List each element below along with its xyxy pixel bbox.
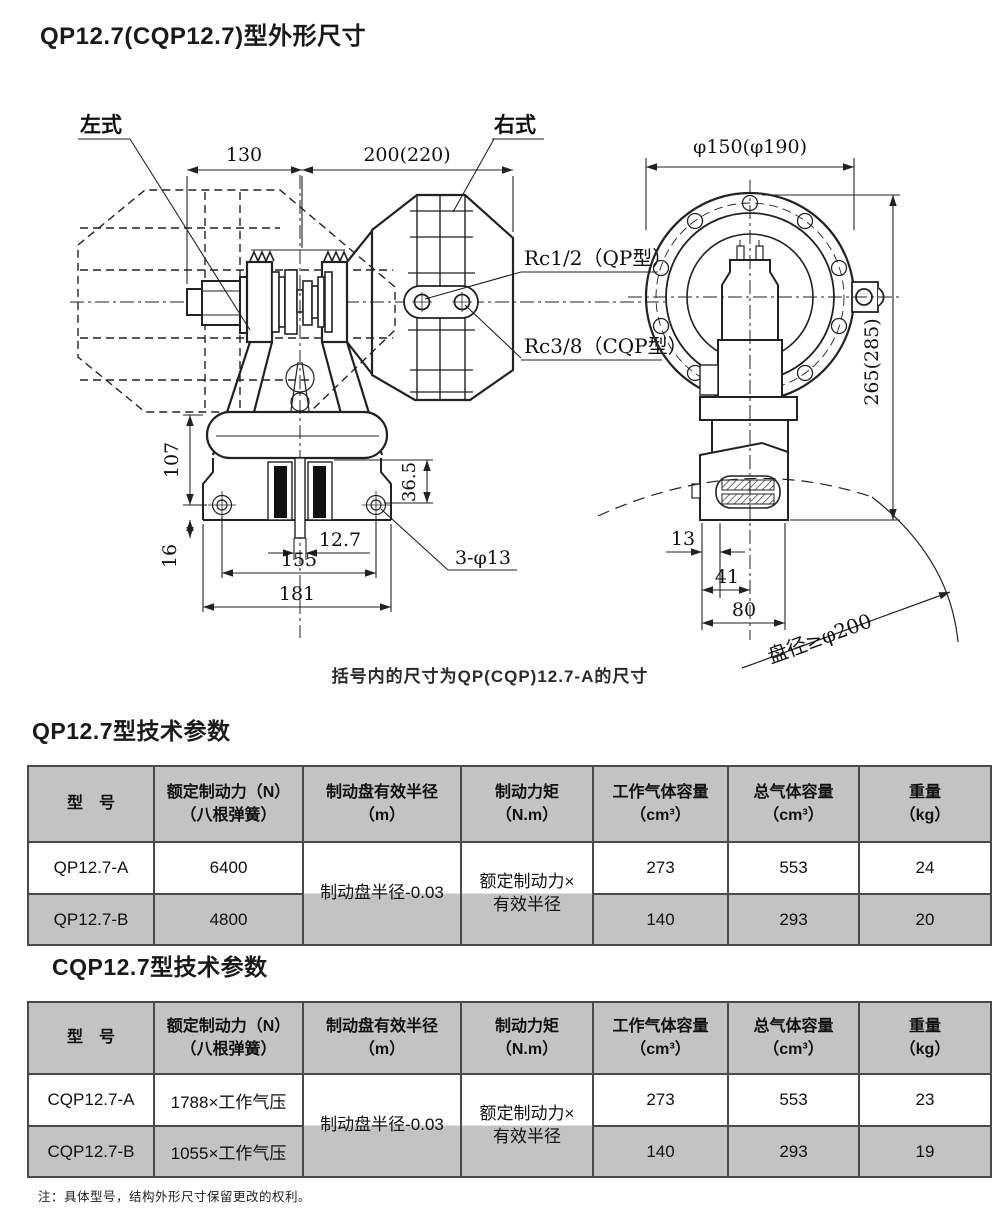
label-disc-diameter: 盘径≥φ200: [764, 609, 875, 669]
cqp-col-model: 型 号: [28, 1002, 154, 1074]
qp-b-force: 4800: [154, 894, 303, 945]
mount-hole-right: [362, 491, 390, 519]
technical-drawing: 130 200(220) 107 16 36.5: [0, 0, 1006, 700]
qp-col-torque: 制动力矩（N.m）: [461, 766, 593, 842]
dim-107: 107: [161, 442, 183, 478]
cqp-col-total-volume: 总气体容量（cm³）: [728, 1002, 859, 1074]
side-bracket: [692, 443, 788, 520]
dim-16: 16: [159, 544, 181, 568]
cqp-col-force: 额定制动力（N）（八根弹簧）: [154, 1002, 303, 1074]
dim-200-220: 200(220): [363, 144, 450, 166]
pad-disc-stack: [272, 270, 332, 334]
dim-265-285: 265(285): [861, 318, 883, 405]
side-view: φ150(φ190) 265(285) 13 41 80: [598, 136, 958, 668]
qp-table-title: QP12.7型技术参数: [32, 712, 231, 746]
cylinder-housing: [207, 412, 387, 458]
qp-b-weight: 20: [859, 894, 991, 945]
cqp-a-work-volume: 273: [593, 1074, 728, 1126]
dim-phi150: φ150(φ190): [693, 136, 807, 158]
cqp-merged-torque: 额定制动力×有效半径: [461, 1074, 593, 1177]
air-port-slot: [404, 286, 478, 318]
lower-bracket: [203, 458, 391, 538]
cqp-a-weight: 23: [859, 1074, 991, 1126]
qp-a-work-volume: 273: [593, 842, 728, 894]
dim-155: 155: [281, 549, 317, 571]
qp-b-work-volume: 140: [593, 894, 728, 945]
qp-col-work-volume: 工作气体容量（cm³）: [593, 766, 728, 842]
qp-merged-radius: 制动盘半径-0.03: [303, 842, 461, 945]
qp-parameters-table: 型 号 额定制动力（N）（八根弹簧） 制动盘有效半径（m） 制动力矩（N.m） …: [27, 765, 992, 946]
cqp-a-model: CQP12.7-A: [28, 1074, 154, 1126]
dim-13: 13: [671, 528, 695, 550]
cqp-col-radius: 制动盘有效半径（m）: [303, 1002, 461, 1074]
cqp-b-work-volume: 140: [593, 1126, 728, 1177]
cqp-header-row: 型 号 额定制动力（N）（八根弹簧） 制动盘有效半径（m） 制动力矩（N.m） …: [28, 1002, 991, 1074]
qp-col-force: 额定制动力（N）（八根弹簧）: [154, 766, 303, 842]
drawing-caption: 括号内的尺寸为QP(CQP)12.7-A的尺寸: [255, 662, 725, 687]
qp-header-row: 型 号 额定制动力（N）（八根弹簧） 制动盘有效半径（m） 制动力矩（N.m） …: [28, 766, 991, 842]
cqp-merged-radius: 制动盘半径-0.03: [303, 1074, 461, 1177]
dim-80: 80: [732, 599, 756, 621]
footnote: 注：具体型号，结构外形尺寸保留更改的权利。: [38, 1186, 311, 1205]
qp-col-total-volume: 总气体容量（cm³）: [728, 766, 859, 842]
dim-3-phi13: 3-φ13: [455, 547, 511, 569]
cqp-a-total-volume: 553: [728, 1074, 859, 1126]
dim-41: 41: [715, 566, 739, 588]
qp-a-model: QP12.7-A: [28, 842, 154, 894]
qp-col-radius: 制动盘有效半径（m）: [303, 766, 461, 842]
qp-a-weight: 24: [859, 842, 991, 894]
cqp-table-title: CQP12.7型技术参数: [52, 948, 268, 982]
qp-a-total-volume: 553: [728, 842, 859, 894]
cqp-b-model: CQP12.7-B: [28, 1126, 154, 1177]
qp-col-model: 型 号: [28, 766, 154, 842]
front-view: 130 200(220) 107 16 36.5: [70, 113, 688, 638]
cqp-row-a: CQP12.7-A 1788×工作气压 制动盘半径-0.03 额定制动力×有效半…: [28, 1074, 991, 1126]
qp-b-total-volume: 293: [728, 894, 859, 945]
label-left-type: 左式: [80, 113, 122, 137]
shaft-assembly: [187, 277, 248, 333]
cqp-b-weight: 19: [859, 1126, 991, 1177]
dim-36-5: 36.5: [399, 462, 420, 502]
mount-hole-left: [208, 491, 236, 519]
cqp-col-weight: 重量（kg）: [859, 1002, 991, 1074]
cqp-b-force: 1055×工作气压: [154, 1126, 303, 1177]
dim-130: 130: [226, 144, 262, 166]
cqp-parameters-table: 型 号 额定制动力（N）（八根弹簧） 制动盘有效半径（m） 制动力矩（N.m） …: [27, 1001, 992, 1178]
cqp-a-force: 1788×工作气压: [154, 1074, 303, 1126]
dim-front-widths: [187, 170, 513, 284]
qp-col-weight: 重量（kg）: [859, 766, 991, 842]
catalog-page: QP12.7(CQP12.7)型外形尺寸: [0, 0, 1006, 1216]
qp-merged-torque: 额定制动力×有效半径: [461, 842, 593, 945]
qp-row-a: QP12.7-A 6400 制动盘半径-0.03 额定制动力×有效半径 273 …: [28, 842, 991, 894]
leader-right-type: [453, 139, 544, 212]
dim-12-7: 12.7: [319, 529, 361, 551]
spring-symbols: [250, 250, 348, 261]
label-right-type: 右式: [494, 113, 536, 137]
qp-b-model: QP12.7-B: [28, 894, 154, 945]
cqp-col-work-volume: 工作气体容量（cm³）: [593, 1002, 728, 1074]
cqp-col-torque: 制动力矩（N.m）: [461, 1002, 593, 1074]
cqp-b-total-volume: 293: [728, 1126, 859, 1177]
side-body: [700, 240, 797, 455]
dim-181: 181: [279, 583, 315, 605]
qp-a-force: 6400: [154, 842, 303, 894]
